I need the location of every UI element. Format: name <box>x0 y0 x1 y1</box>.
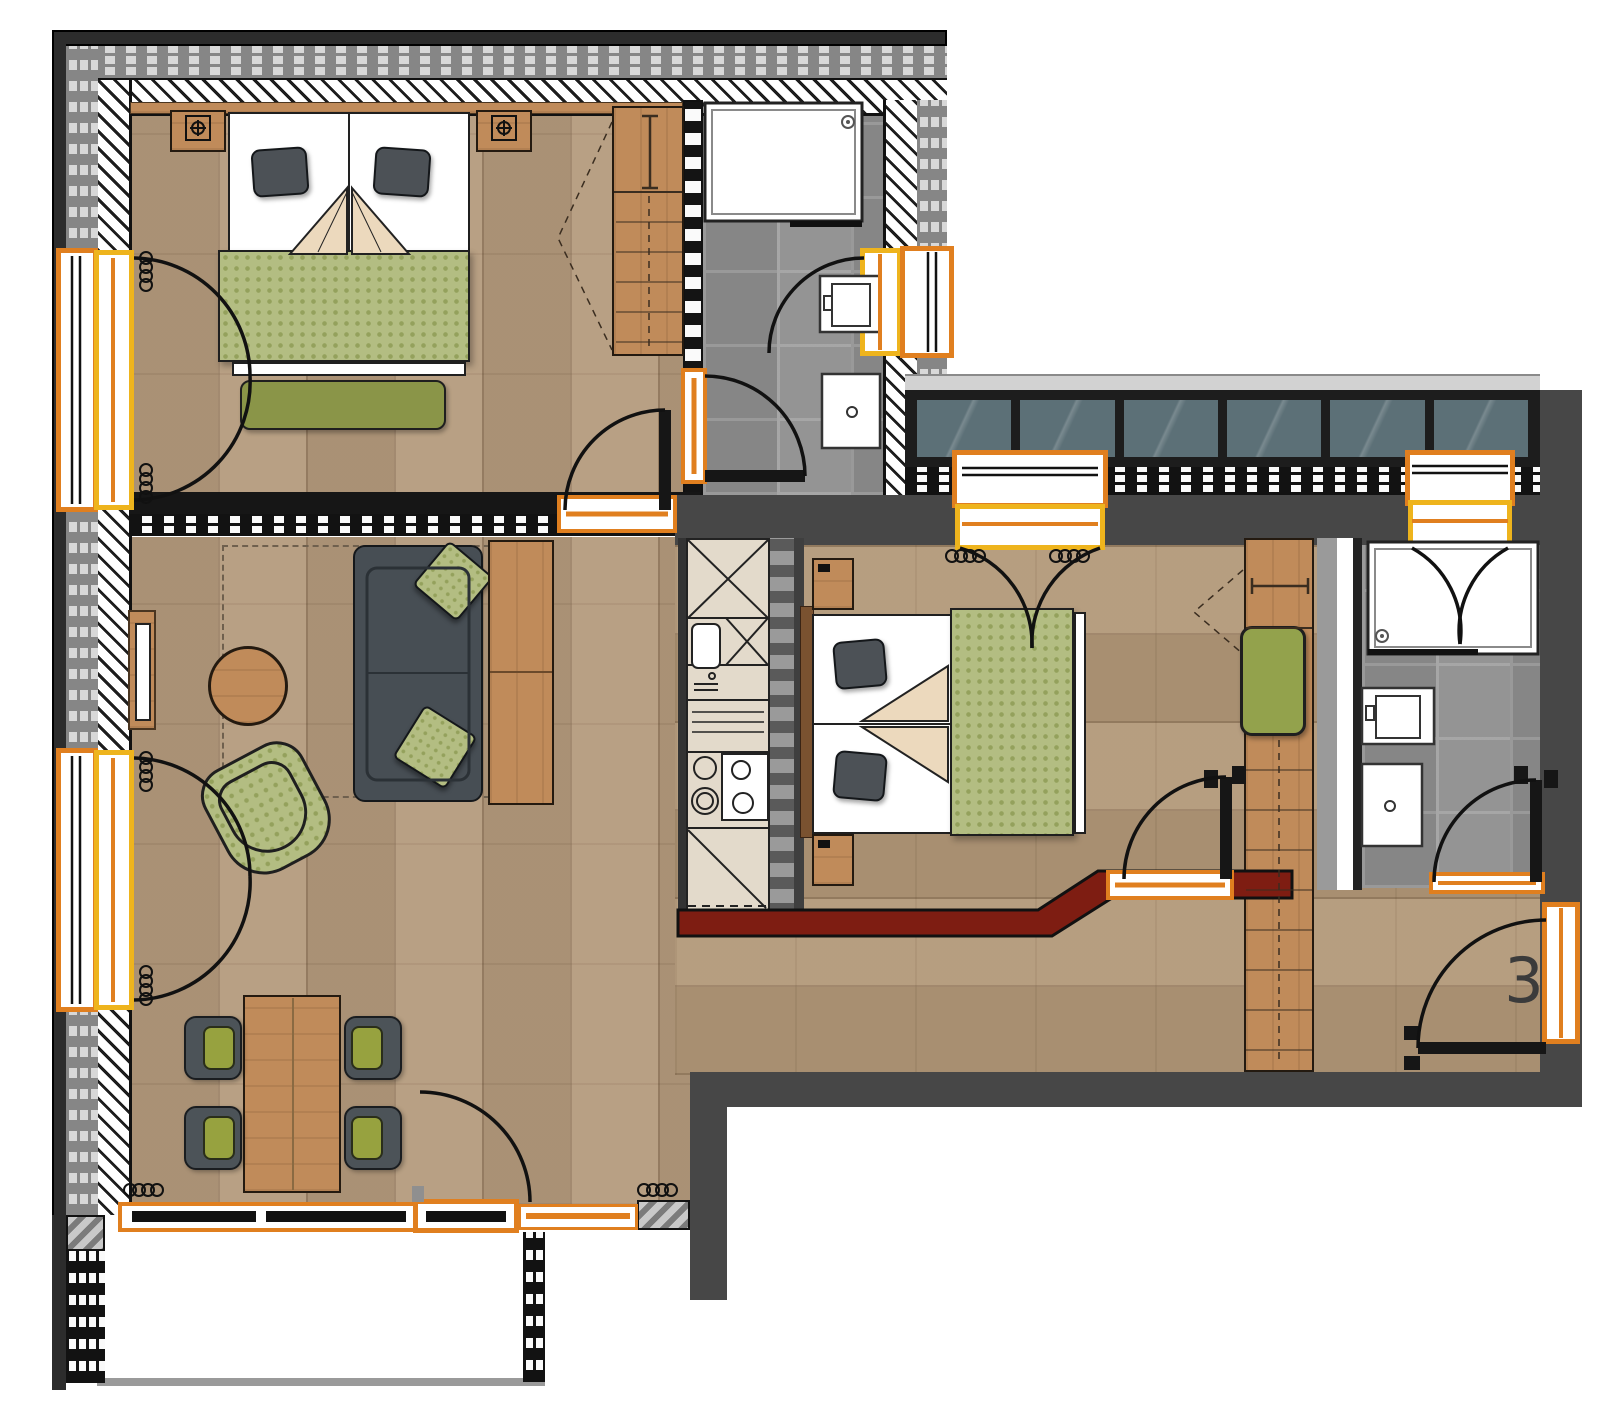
bed1-south-wall <box>130 492 700 514</box>
balcony-door-glass-bar <box>426 1211 506 1222</box>
bath2-window-inner-frame <box>1408 500 1512 548</box>
kitchen-west-line <box>678 538 686 915</box>
bed2-nightstand-top <box>812 558 854 610</box>
facade-top-strip <box>905 374 1540 390</box>
living-window-inner-frame <box>94 750 134 1010</box>
bed1-window-outer-frame <box>56 248 98 512</box>
balcony-floor <box>105 1232 523 1380</box>
glass-pane <box>1434 400 1528 457</box>
bath2-west-wall <box>1317 538 1362 890</box>
bed1-bench <box>240 380 446 430</box>
west-wall-masonry <box>66 46 98 1215</box>
west-wall-outer <box>52 35 66 1215</box>
bathroom1-floor <box>703 110 883 495</box>
dining-table <box>243 995 341 1193</box>
bath2-window-outer-frame <box>1405 450 1515 506</box>
balcony-west-hatch <box>66 1215 105 1251</box>
bed1-pillow-right <box>372 146 431 198</box>
bed1-window-inner-frame <box>94 250 134 510</box>
kitchenette <box>686 538 770 915</box>
kitchen-east-partition <box>770 538 794 915</box>
balcony-east-column <box>523 1232 545 1382</box>
bed1-foot-frame <box>232 362 466 376</box>
balcony-west-outer <box>52 1215 66 1390</box>
balcony-sidelight-bar <box>526 1213 630 1219</box>
bath1-window-inner-frame <box>860 248 902 356</box>
glass-pane <box>917 400 1011 457</box>
dining-chair-seat <box>203 1026 235 1070</box>
glass-pane <box>1227 400 1321 457</box>
dining-chair <box>184 1106 242 1170</box>
bed1-pillow-left <box>250 146 309 198</box>
bed2-foot-frame <box>1074 612 1086 834</box>
unit-number-label: 3 <box>1492 944 1556 1017</box>
bed1-south-wall-pattern <box>130 514 700 536</box>
south-wall-stub <box>690 1072 727 1300</box>
bed2-pillow-bottom <box>832 750 888 802</box>
coffee-table <box>208 646 288 726</box>
bed1-nightstand-left <box>170 110 226 152</box>
balcony-west-column <box>66 1251 105 1383</box>
dining-chair <box>344 1016 402 1080</box>
balcony-glazing-bar-2 <box>266 1211 406 1222</box>
bed2-blanket <box>950 608 1074 836</box>
bathroom2-floor <box>1362 540 1540 888</box>
bed2-pillow-top <box>832 638 888 690</box>
glass-pane <box>1124 400 1218 457</box>
bed2-nightstand-bottom <box>812 834 854 886</box>
dining-chair <box>344 1106 402 1170</box>
north-wall-outer <box>52 30 947 46</box>
bath1-window-outer-frame <box>900 246 954 358</box>
bed2-wardrobe <box>1244 538 1314 1072</box>
dining-chair-seat <box>351 1026 383 1070</box>
glass-pane <box>1330 400 1424 457</box>
dining-chair <box>184 1016 242 1080</box>
bed1-nightstand-right <box>476 110 532 152</box>
bed1-wardrobe <box>612 106 684 356</box>
tv-panel <box>128 610 156 730</box>
balcony-edge <box>97 1378 545 1386</box>
glass-pane <box>1020 400 1114 457</box>
bed2-window-inner-frame <box>955 504 1105 550</box>
balcony-band-hatch-piece <box>637 1200 690 1230</box>
north-wall-masonry <box>52 46 947 80</box>
bed1-blanket <box>218 250 470 362</box>
south-wall <box>690 1072 1575 1107</box>
balcony-glazing-bar-1 <box>132 1211 256 1222</box>
floor-plan: 3 <box>0 0 1612 1421</box>
dining-chair-seat <box>351 1116 383 1160</box>
bed2-window-outer-frame <box>952 450 1108 508</box>
bed1-bath1-partition <box>683 100 703 495</box>
sideboard <box>488 540 554 805</box>
bed2-wardrobe-bench <box>1240 626 1306 736</box>
living-window-outer-frame <box>56 748 98 1012</box>
dining-chair-seat <box>203 1116 235 1160</box>
